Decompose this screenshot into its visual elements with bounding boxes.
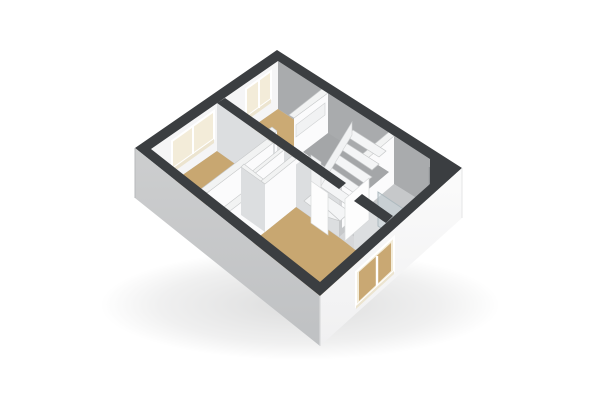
floorplan-3d-canvas: soft drop shadow under building bedroom-… (0, 0, 600, 400)
floorplan-3d-svg: soft drop shadow under building bedroom-… (0, 0, 600, 400)
